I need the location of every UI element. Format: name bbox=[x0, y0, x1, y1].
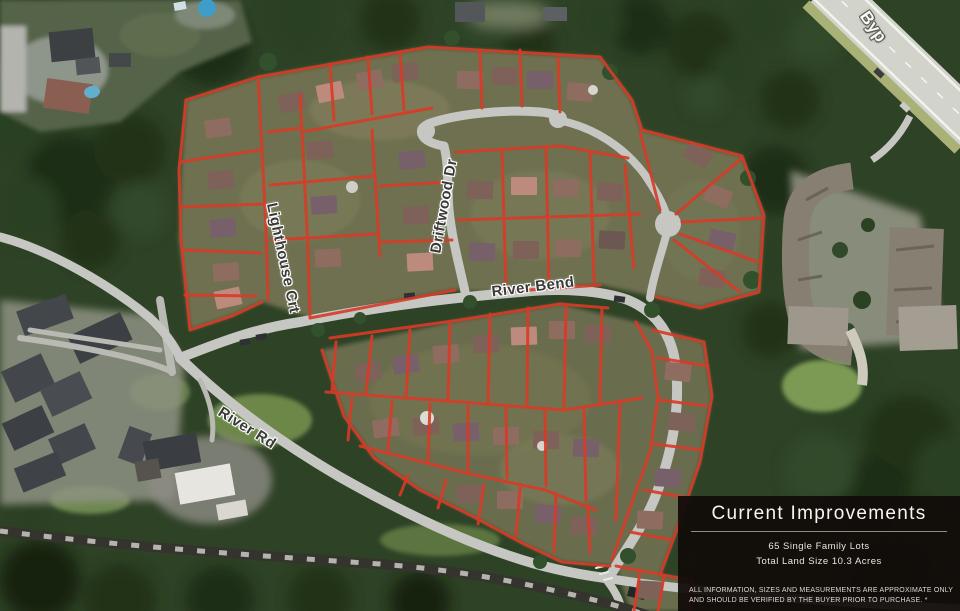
panel-title: Current Improvements bbox=[678, 503, 960, 525]
aerial-map-view: Lighthouse Crt Driftwood Dr River Bend R… bbox=[0, 0, 960, 611]
panel-divider bbox=[691, 531, 947, 532]
current-improvements-panel: Current Improvements 65 Single Family Lo… bbox=[678, 496, 960, 611]
stat-single-family-lots: 65 Single Family Lots bbox=[678, 539, 960, 554]
stat-total-land-size: Total Land Size 10.3 Acres bbox=[678, 554, 960, 569]
panel-disclaimer: ALL INFORMATION, SIZES AND MEASUREMENTS … bbox=[689, 586, 954, 605]
industrial-buildings bbox=[134, 433, 272, 524]
